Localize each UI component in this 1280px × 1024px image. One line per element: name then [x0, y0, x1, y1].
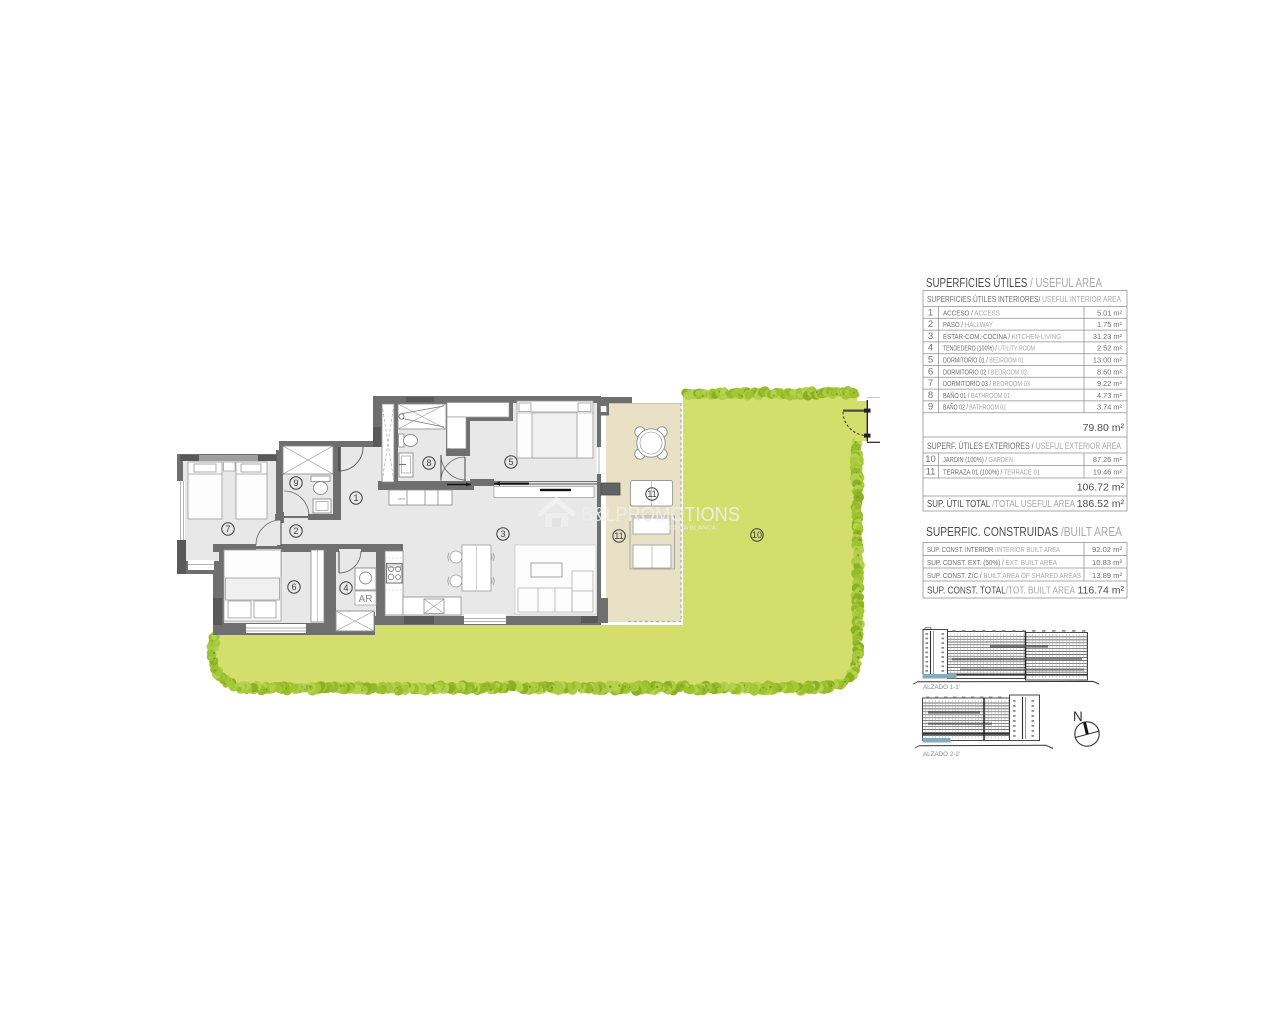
svg-text:8.60 m²: 8.60 m² — [1097, 367, 1123, 376]
svg-text:87.26 m²: 87.26 m² — [1093, 455, 1123, 464]
svg-text:SUP. CONST. TOTAL/TOT. BUILT A: SUP. CONST. TOTAL/TOT. BUILT AREA — [927, 586, 1075, 597]
svg-text:1: 1 — [353, 493, 358, 503]
svg-text:SUPERFICIES ÚTILES INTERIORES/: SUPERFICIES ÚTILES INTERIORES/ USEFUL IN… — [927, 294, 1121, 304]
svg-text:7: 7 — [928, 378, 933, 389]
svg-text:7: 7 — [225, 524, 230, 534]
svg-text:lavd: lavd — [398, 496, 405, 501]
svg-text:SUP. CONST. EXT. (50%) / EXT.: SUP. CONST. EXT. (50%) / EXT. BUILT AREA — [927, 558, 1058, 567]
svg-text:2: 2 — [293, 526, 298, 536]
svg-text:2.52 m²: 2.52 m² — [1097, 344, 1123, 353]
svg-text:10.83 m²: 10.83 m² — [1092, 558, 1122, 567]
svg-text:4: 4 — [343, 583, 348, 593]
svg-text:11: 11 — [926, 467, 936, 478]
svg-text:1: 1 — [928, 307, 933, 318]
svg-text:19.46 m²: 19.46 m² — [1093, 468, 1123, 477]
svg-text:ALZADO 2-2′: ALZADO 2-2′ — [923, 751, 961, 758]
svg-text:106.72 m²: 106.72 m² — [1077, 482, 1125, 494]
svg-text:AR: AR — [359, 594, 373, 605]
svg-text:186.52 m²: 186.52 m² — [1077, 498, 1125, 510]
svg-text:SUP. ÚTIL TOTAL /TOTAL USEFUL: SUP. ÚTIL TOTAL /TOTAL USEFUL AREA — [927, 499, 1075, 510]
svg-text:DORMITORIO 01 / BEDROOM 01: DORMITORIO 01 / BEDROOM 01 — [943, 356, 1024, 365]
svg-text:13.89 m²: 13.89 m² — [1092, 571, 1122, 580]
svg-text:ALZADO 1-1′: ALZADO 1-1′ — [923, 684, 961, 691]
svg-text:PASO / HALLWAY: PASO / HALLWAY — [943, 320, 993, 329]
svg-text:6: 6 — [928, 366, 933, 377]
svg-text:5: 5 — [928, 355, 933, 366]
svg-text:TERRAZA 01 (100%) / TERRACE 01: TERRAZA 01 (100%) / TERRACE 01 — [943, 468, 1040, 477]
svg-text:SUP. CONST. INTERIOR /INTERIOR: SUP. CONST. INTERIOR /INTERIOR BUILT ARE… — [927, 545, 1061, 554]
svg-text:9: 9 — [928, 402, 933, 413]
svg-text:9: 9 — [293, 478, 298, 488]
svg-text:6: 6 — [291, 582, 296, 592]
svg-text:4: 4 — [928, 343, 933, 354]
svg-text:BAÑO 02 / BATHROOM 01: BAÑO 02 / BATHROOM 01 — [943, 403, 1006, 412]
svg-text:TENDEDERO (100%) / UTILITY ROO: TENDEDERO (100%) / UTILITY ROOM — [943, 344, 1035, 353]
svg-text:2: 2 — [928, 319, 933, 330]
svg-text:COSTA BLANCA: COSTA BLANCA — [666, 526, 716, 532]
svg-text:5: 5 — [508, 457, 513, 467]
svg-text:SUPERFICIES ÚTILES / USEFUL AR: SUPERFICIES ÚTILES / USEFUL AREA — [926, 275, 1102, 290]
svg-text:JARDIN (100%) / GARDEN: JARDIN (100%) / GARDEN — [943, 455, 1013, 464]
svg-text:5.01 m²: 5.01 m² — [1097, 308, 1123, 317]
svg-text:SUP. CONST. Z/C / BUILT AREA O: SUP. CONST. Z/C / BUILT AREA OF SHARED A… — [927, 571, 1081, 580]
svg-text:11: 11 — [647, 489, 656, 499]
svg-text:10: 10 — [925, 454, 936, 465]
svg-text:ESTAR-COM.-COCINA / KITCHEN-LI: ESTAR-COM.-COCINA / KITCHEN-LIVING — [943, 332, 1061, 341]
svg-text:8: 8 — [928, 390, 933, 401]
svg-text:BAÑO 01 / BATHROOM 01: BAÑO 01 / BATHROOM 01 — [943, 391, 1010, 400]
svg-text:3.74 m²: 3.74 m² — [1097, 403, 1123, 412]
svg-text:92.02 m²: 92.02 m² — [1092, 545, 1122, 554]
svg-text:9.22 m²: 9.22 m² — [1097, 379, 1123, 388]
svg-text:ACCESO / ACCESS: ACCESO / ACCESS — [943, 308, 1000, 317]
svg-text:1.75 m²: 1.75 m² — [1097, 320, 1123, 329]
svg-text:8: 8 — [426, 458, 431, 468]
svg-text:B&LPROMOTIONS: B&LPROMOTIONS — [581, 504, 740, 526]
svg-text:3: 3 — [500, 529, 505, 539]
svg-text:3: 3 — [928, 331, 933, 342]
svg-text:31.23 m²: 31.23 m² — [1093, 332, 1123, 341]
svg-text:SUPERF. ÚTILES EXTERIORES / US: SUPERF. ÚTILES EXTERIORES / USEFUL EXTER… — [927, 441, 1121, 451]
svg-text:DORMITORIO 03 / BEDROOM 03: DORMITORIO 03 / BEDROOM 03 — [943, 379, 1030, 388]
svg-text:13.00 m²: 13.00 m² — [1093, 356, 1123, 365]
svg-text:11: 11 — [614, 531, 623, 541]
svg-text:79.80 m²: 79.80 m² — [1083, 422, 1125, 434]
svg-text:DORMITORIO 02 / BEDROOM 02: DORMITORIO 02 / BEDROOM 02 — [943, 367, 1027, 376]
svg-text:SUPERFIC. CONSTRUIDAS /BUILT A: SUPERFIC. CONSTRUIDAS /BUILT AREA — [926, 524, 1122, 539]
svg-text:116.74 m²: 116.74 m² — [1078, 585, 1125, 597]
svg-text:4.73 m²: 4.73 m² — [1097, 391, 1123, 400]
svg-text:10: 10 — [752, 530, 762, 540]
svg-text:N: N — [1073, 709, 1083, 724]
